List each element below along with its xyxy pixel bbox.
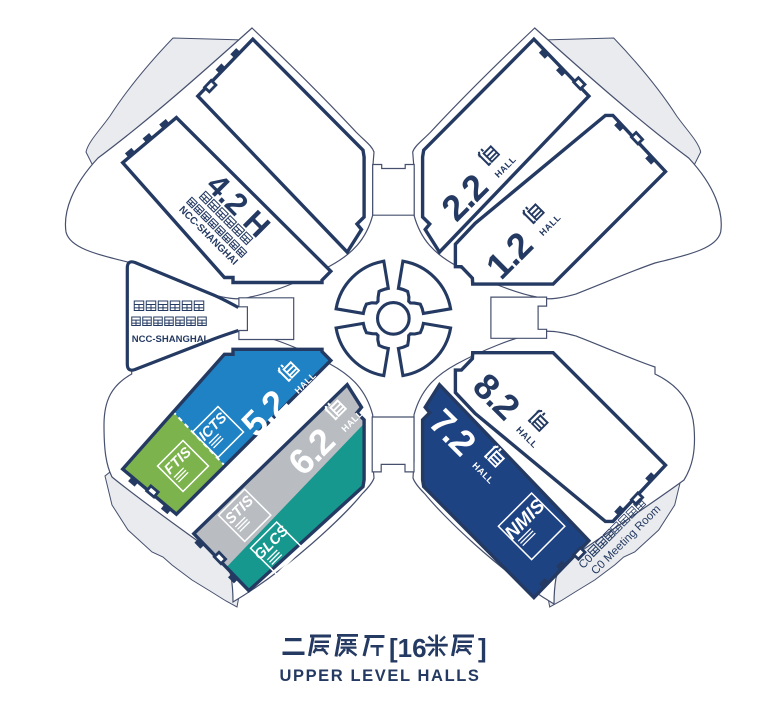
svg-text:UPPER LEVEL HALLS: UPPER LEVEL HALLS — [279, 667, 480, 685]
svg-text:NCC-SHANGHAI: NCC-SHANGHAI — [132, 334, 206, 345]
svg-text:]: ] — [478, 633, 487, 663]
svg-text:[16: [16 — [389, 633, 427, 663]
